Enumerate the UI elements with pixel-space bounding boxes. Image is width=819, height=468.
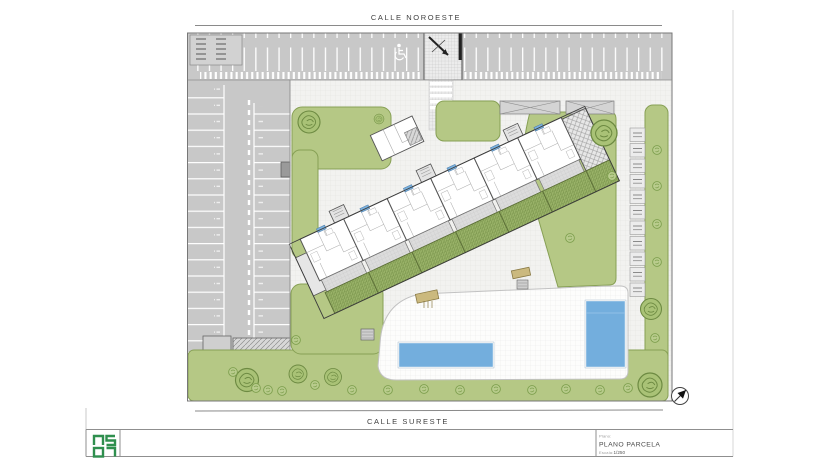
bush-icon — [384, 386, 393, 395]
bush-icon — [653, 258, 662, 267]
street-line-bottom — [195, 410, 663, 411]
parcel — [188, 33, 673, 401]
bike-stall — [630, 268, 645, 282]
bush-icon — [608, 172, 617, 181]
swimming-pool-long — [398, 342, 494, 368]
bush-icon — [528, 386, 537, 395]
bush-icon — [264, 386, 273, 395]
bike-stall — [630, 283, 645, 297]
bike-stall — [630, 237, 645, 251]
bush-icon — [562, 385, 571, 394]
gate-enclosure — [281, 162, 290, 177]
logo-0507 — [94, 436, 115, 457]
bike-stall — [630, 206, 645, 220]
bush-icon — [566, 234, 575, 243]
stall-tick-row — [464, 72, 662, 79]
north-compass-icon — [672, 388, 689, 405]
bike-stall-column — [630, 128, 645, 297]
street-name-top: CALLE NOROESTE — [371, 13, 461, 22]
stall-numbers — [258, 106, 264, 344]
tree-icon — [289, 365, 307, 383]
swimming-pool-small — [585, 300, 626, 368]
plano-label: Plano: — [599, 434, 612, 439]
top-parking-stalls — [462, 33, 666, 71]
escala-value: 1/250 — [614, 450, 626, 455]
plan-sheet: CALLE NOROESTE CALLE SURESTE — [0, 0, 819, 468]
pergola-carports — [500, 101, 614, 114]
bike-stall — [630, 252, 645, 266]
tree-icon — [641, 299, 662, 320]
bush-icon — [229, 368, 238, 377]
bush-icon — [596, 386, 605, 395]
bike-stall — [630, 190, 645, 204]
bush-icon — [278, 387, 287, 396]
bush-icon — [348, 386, 357, 395]
bike-stall — [630, 221, 645, 235]
tree-icon — [298, 111, 320, 133]
bush-icon — [292, 336, 301, 345]
tree-icon — [591, 120, 617, 146]
tree-icon — [325, 369, 342, 386]
bike-stall — [630, 128, 645, 142]
bike-stall — [630, 159, 645, 173]
bush-icon — [420, 385, 429, 394]
bike-stall — [630, 175, 645, 189]
bush-icon — [492, 385, 501, 394]
bush-icon — [653, 182, 662, 191]
bush-icon — [653, 220, 662, 229]
parking-legend-block — [190, 35, 242, 65]
escala-label: Escala: — [599, 450, 614, 455]
deck-steps — [361, 329, 374, 340]
tree-icon — [638, 373, 662, 397]
plano-value: PLANO PARCELA — [599, 442, 660, 449]
stall-numbers — [214, 88, 220, 344]
title-block: Plano: PLANO PARCELA Escala: 1/250 — [86, 430, 733, 457]
site-plan-drawing: CALLE NOROESTE CALLE SURESTE — [0, 0, 819, 468]
bush-icon — [311, 381, 320, 390]
stall-tick-row — [200, 72, 422, 79]
lawn-top-middle — [436, 101, 500, 141]
street-name-bottom: CALLE SURESTE — [367, 417, 449, 426]
bush-icon — [653, 146, 662, 155]
bush-icon — [252, 384, 261, 393]
bush-icon — [456, 386, 465, 395]
bike-stall — [630, 144, 645, 158]
tree-icon — [374, 114, 384, 124]
bush-icon — [624, 384, 633, 393]
vehicle-ramp — [424, 33, 462, 80]
bush-icon — [651, 334, 660, 343]
